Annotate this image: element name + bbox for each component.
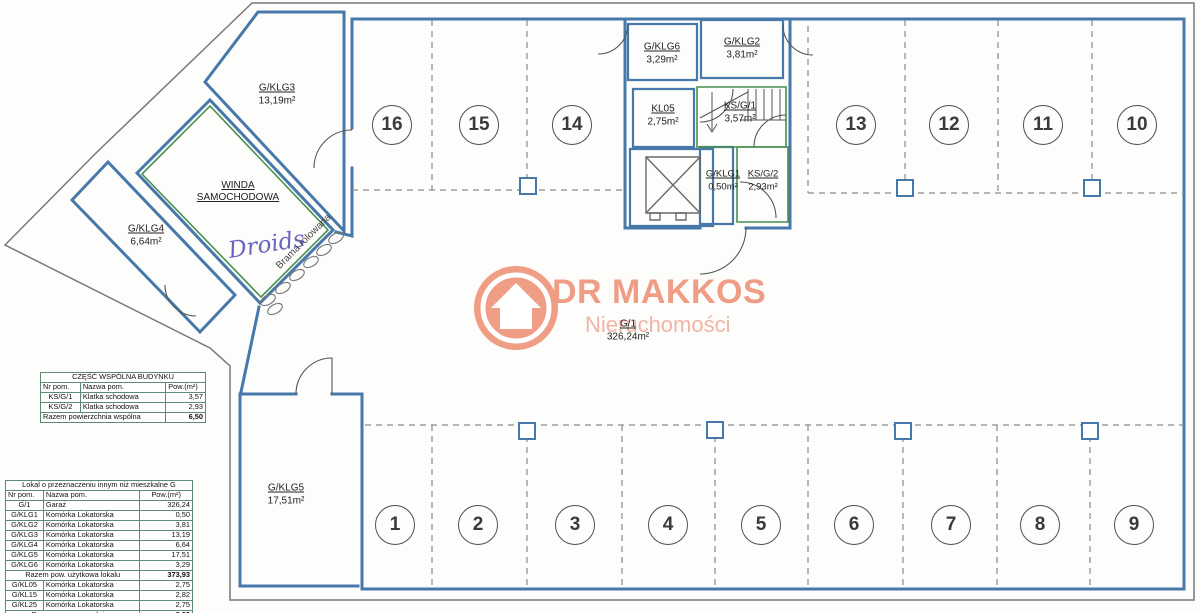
unit-g-table: Lokal o przeznaczeniu innym niż mieszkal…	[5, 480, 193, 613]
room-label-gklg4: G/KLG4 6,64m²	[128, 224, 164, 249]
parking-spot-9: 9	[1114, 505, 1154, 545]
house-logo-icon	[473, 265, 559, 351]
table-row: KS/G/1 Klatka schodowa 3,57	[41, 393, 206, 403]
table-row: G/KLG1 Komórka Lokatorska 0,50	[6, 511, 193, 521]
room-label-ksg2: KS/G/2 2,93m²	[748, 169, 779, 194]
table-title: CZĘŚĆ WSPÓLNA BUDYNKU	[41, 373, 206, 383]
parking-spot-1: 1	[375, 505, 415, 545]
table-subtotal-row: Razem pow. użytkowa lokalu 373,93	[6, 571, 193, 581]
parking-spot-5: 5	[741, 505, 781, 545]
table-row: G/KLG3 Komórka Lokatorska 13,19	[6, 531, 193, 541]
table-row: G/KLG5 Komórka Lokatorska 17,51	[6, 551, 193, 561]
room-label-ksg1: KS/G/1 3,57m²	[724, 101, 756, 126]
room-label-gklg6: G/KLG6 3,29m²	[644, 42, 680, 67]
table-header-row: Nr pom. Nazwa pom. Pow.(m²)	[41, 383, 206, 393]
table-row: G/KLG4 Komórka Lokatorska 6,64	[6, 541, 193, 551]
parking-spot-7: 7	[931, 505, 971, 545]
parking-spot-14: 14	[552, 105, 592, 145]
elevator-shaft-icon	[646, 157, 700, 220]
parking-spot-15: 15	[459, 105, 499, 145]
common-areas-table: CZĘŚĆ WSPÓLNA BUDYNKU Nr pom. Nazwa pom.…	[40, 372, 206, 423]
room-label-kl05: KL05 2,75m²	[647, 104, 678, 129]
table-row: G/KL15 Komórka Lokatorska 2,82	[6, 591, 193, 601]
parking-spot-12: 12	[929, 105, 969, 145]
parking-spot-6: 6	[834, 505, 874, 545]
table-row: G/1 Garaż 326,24	[6, 501, 193, 511]
dr-makkos-logo: DR MAKKOS Nieruchomości	[473, 265, 893, 360]
table-row: G/KLG6 Komórka Lokatorska 3,29	[6, 561, 193, 571]
parking-spot-8: 8	[1020, 505, 1060, 545]
parking-spot-13: 13	[836, 105, 876, 145]
room-label-gklg3: G/KLG3 13,19m²	[259, 83, 296, 108]
room-label-g1: G/1 326,24m²	[607, 319, 649, 344]
room-label-winda: WINDA SAMOCHODOWA	[197, 180, 279, 204]
table-row: G/KL25 Komórka Lokatorska 2,75	[6, 601, 193, 611]
room-label-gklg1: G/KLG1 0,50m²	[706, 169, 740, 194]
logo-title: DR MAKKOS	[552, 273, 766, 312]
room-label-gklg5: G/KLG5 17,51m²	[268, 483, 305, 508]
floor-plan-page: DR MAKKOS Nieruchomości G/KLG3 13,19m² W…	[0, 0, 1200, 613]
parking-spot-11: 11	[1023, 105, 1063, 145]
table-total-row: Razem powierzchnia wspólna 6,50	[41, 413, 206, 423]
parking-spot-10: 10	[1117, 105, 1157, 145]
room-label-gklg2: G/KLG2 3,81m²	[724, 37, 760, 62]
table-title: Lokal o przeznaczeniu innym niż mieszkal…	[6, 481, 193, 491]
table-row: G/KL05 Komórka Lokatorska 2,75	[6, 581, 193, 591]
parking-spot-16: 16	[372, 105, 412, 145]
table-row: G/KLG2 Komórka Lokatorska 3,81	[6, 521, 193, 531]
table-header-row: Nr pom. Nazwa pom. Pow.(m²)	[6, 491, 193, 501]
parking-spot-4: 4	[648, 505, 688, 545]
table-row: KS/G/2 Klatka schodowa 2,93	[41, 403, 206, 413]
parking-spot-2: 2	[458, 505, 498, 545]
parking-spot-3: 3	[555, 505, 595, 545]
